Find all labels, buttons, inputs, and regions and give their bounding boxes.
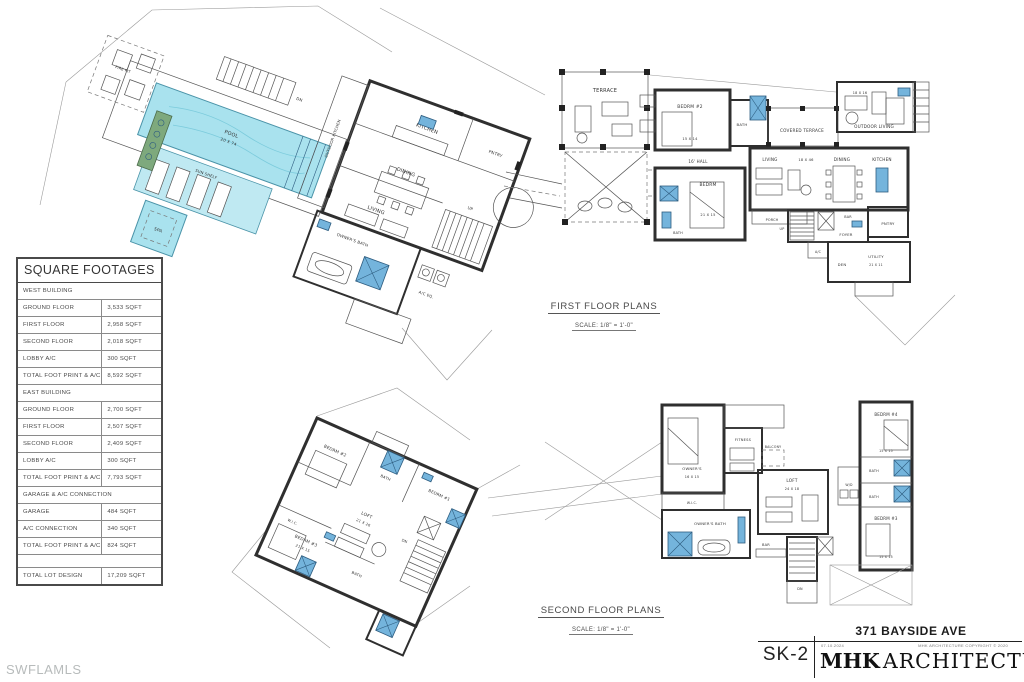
sheet-date: 07.10.2024: [821, 643, 844, 648]
copyright-note: MHK ARCHITECTURE COPYRIGHT © 2020: [918, 643, 1008, 648]
second-floor-scale: SCALE: 1/8" = 1'-0": [569, 626, 633, 635]
room-label-bedrm4: BEDRM #4: [874, 412, 898, 417]
stair-label-dn: DN: [296, 96, 304, 103]
room-label-loft: LOFT: [786, 478, 797, 483]
square-footage-table: SQUARE FOOTAGES WEST BUILDING GROUND FLO…: [16, 257, 163, 586]
table-row: WEST BUILDING: [18, 283, 161, 300]
room-label-outdoor-living: OUTDOOR LIVING: [854, 124, 894, 129]
room-label-dining: DINING: [396, 166, 416, 178]
title-block-vertical-divider: [814, 636, 815, 678]
room-label-owners-bath: OWNER'S BATH: [694, 521, 726, 526]
room-label-ac: A/C EQ.: [418, 289, 434, 299]
table-row: SECOND FLOOR2,018 SQFT: [18, 334, 161, 351]
firm-logo: MHKARCHITECTURE: [820, 649, 1024, 673]
room-label-living-dim: 18 X 46: [798, 158, 814, 162]
room-label-hall: 16' HALL: [688, 159, 708, 164]
room-label-bedrm3-dim: 15 X 15: [879, 555, 893, 559]
room-label-utility: UTILITY: [868, 254, 884, 259]
room-label-owners-bath: OWNER'S BATH: [336, 232, 369, 248]
room-label-outdoor-kitchen: OUTDOOR KITCHEN: [323, 119, 341, 159]
room-label-loft-dim: 24 X 18: [785, 487, 800, 491]
table-row: LOBBY A/C300 SQFT: [18, 453, 161, 470]
room-label-bedrm2-dim: 15 X 14: [682, 137, 698, 141]
first-floor-title: FIRST FLOOR PLANS: [548, 301, 660, 314]
room-label-bedrm4-dim: 15 X 15: [879, 449, 893, 453]
table-row: FIRST FLOOR2,958 SQFT: [18, 317, 161, 334]
room-label-bedrm3-dim: 21 X 15: [295, 544, 311, 554]
room-label-owners: OWNER'S: [682, 466, 702, 471]
room-label-bath2: BATH: [351, 570, 363, 579]
table-row: FIRST FLOOR2,507 SQFT: [18, 419, 161, 436]
room-label-wd: W/D: [845, 483, 853, 487]
room-label-kitchen: KITCHEN: [872, 157, 892, 162]
table-row: GARAGE484 SQFT: [18, 504, 161, 521]
table-row: TOTAL LOT DESIGN17,209 SQFT: [18, 568, 161, 584]
east-building-second-floor-plan: OWNER'S 16 X 15 FITNESS BALCONY LOFT 24 …: [662, 402, 912, 605]
first-floor-scale: SCALE: 1/8" = 1'-0": [572, 322, 636, 331]
owners-bath-wing: OWNER'S BATH A/C EQ.: [285, 211, 455, 351]
table-row-empty: [18, 555, 161, 568]
room-label-wic: W.I.C.: [687, 501, 697, 505]
table-row: GROUND FLOOR3,533 SQFT: [18, 300, 161, 317]
pool-stair: DN: [216, 57, 307, 110]
room-label-utility-dim: 21 X 11: [869, 263, 883, 267]
room-label-fire-pit: FIRE PIT: [115, 65, 132, 74]
room-label-foyer: FOYER: [839, 232, 852, 237]
room-label-bedrm3: BEDRM #3: [874, 516, 898, 521]
room-label-bedrm2: BEDRM #2: [677, 104, 702, 110]
room-label-living: LIVING: [366, 205, 385, 217]
table-row: SECOND FLOOR2,409 SQFT: [18, 436, 161, 453]
room-label-bedrm: BEDRM: [699, 182, 716, 188]
room-label-terrace: TERRACE: [592, 88, 617, 94]
firm-initials: MHK: [820, 649, 880, 673]
kitchen-island: [876, 168, 888, 192]
firm-name: ARCHITECTURE: [883, 649, 1024, 673]
room-label-ac: A/C: [815, 250, 822, 254]
stair-label-dn: DN: [797, 587, 803, 591]
room-label-balcony: BALCONY: [765, 445, 782, 449]
room-label-owners-dim: 16 X 15: [685, 475, 700, 479]
table-row: TOTAL FOOT PRINT & A/C8,592 SQFT: [18, 368, 161, 385]
stair-label-up: UP: [780, 227, 785, 231]
stair-label-dn: DN: [401, 538, 408, 544]
table-row: TOTAL FOOT PRINT & A/C7,793 SQFT: [18, 470, 161, 487]
table-row: TOTAL FOOT PRINT & A/C824 SQFT: [18, 538, 161, 555]
table-row: GROUND FLOOR2,700 SQFT: [18, 402, 161, 419]
room-label-pantry: PNTRY: [881, 221, 895, 226]
table-row: A/C CONNECTION340 SQFT: [18, 521, 161, 538]
room-label-pantry: PNTRY: [488, 149, 503, 159]
room-label-bath2: BATH: [869, 495, 879, 499]
architectural-sheet: POOL 20 X 74 SUN SHELF SPA FIRE PIT DN: [0, 0, 1024, 682]
stair-label-up: UP: [467, 205, 474, 212]
room-label-bath1: BATH: [869, 469, 879, 473]
mls-watermark: SWFLAMLS: [6, 662, 82, 677]
east-building-first-floor-plan: BEDRM #2 15 X 14 BATH 16' HALL BEDRM 21 …: [640, 82, 929, 296]
sheet-number: SK-2: [760, 644, 812, 666]
table-row: LOBBY A/C300 SQFT: [18, 351, 161, 368]
table-title: SQUARE FOOTAGES: [18, 259, 161, 283]
room-label-wic: W.I.C.: [287, 518, 298, 526]
room-label-bedrm-dim: 21 X 15: [700, 213, 715, 217]
table-row: GARAGE & A/C CONNECTION: [18, 487, 161, 504]
room-label-dining: DINING: [834, 157, 850, 162]
room-label-bar: BAR: [762, 543, 770, 547]
room-label-porch: PORCH: [766, 218, 779, 222]
entry-vestibule: [488, 182, 539, 233]
first-floor-caption: FIRST FLOOR PLANS SCALE: 1/8" = 1'-0": [548, 301, 660, 332]
second-floor-title: SECOND FLOOR PLANS: [538, 605, 664, 618]
room-label-bar: BAR: [844, 215, 852, 219]
second-floor-caption: SECOND FLOOR PLANS SCALE: 1/8" = 1'-0": [538, 605, 664, 636]
room-label-bedrm1: BEDRM #1: [428, 488, 452, 502]
title-block-divider: [758, 641, 1022, 642]
room-label-living: LIVING: [762, 157, 777, 162]
project-address: 371 BAYSIDE AVE: [800, 624, 1022, 638]
room-label-fitness: FITNESS: [735, 438, 752, 442]
room-label-bath2: BATH: [673, 231, 683, 235]
room-label-outdoor-dim: 18 X 16: [853, 91, 868, 95]
room-label-bath1: BATH: [380, 473, 392, 482]
room-label-covered-terrace: COVERED TERRACE: [780, 128, 824, 133]
room-label-bath: BATH: [737, 122, 748, 127]
room-label-den: DEN: [838, 262, 847, 267]
table-row: EAST BUILDING: [18, 385, 161, 402]
west-building-second-floor-plan: BEDRM #2 BATH BEDRM #1 LOFT 21 X 26 W.I.…: [243, 407, 482, 655]
room-label-bedrm2: BEDRM #2: [323, 444, 347, 459]
